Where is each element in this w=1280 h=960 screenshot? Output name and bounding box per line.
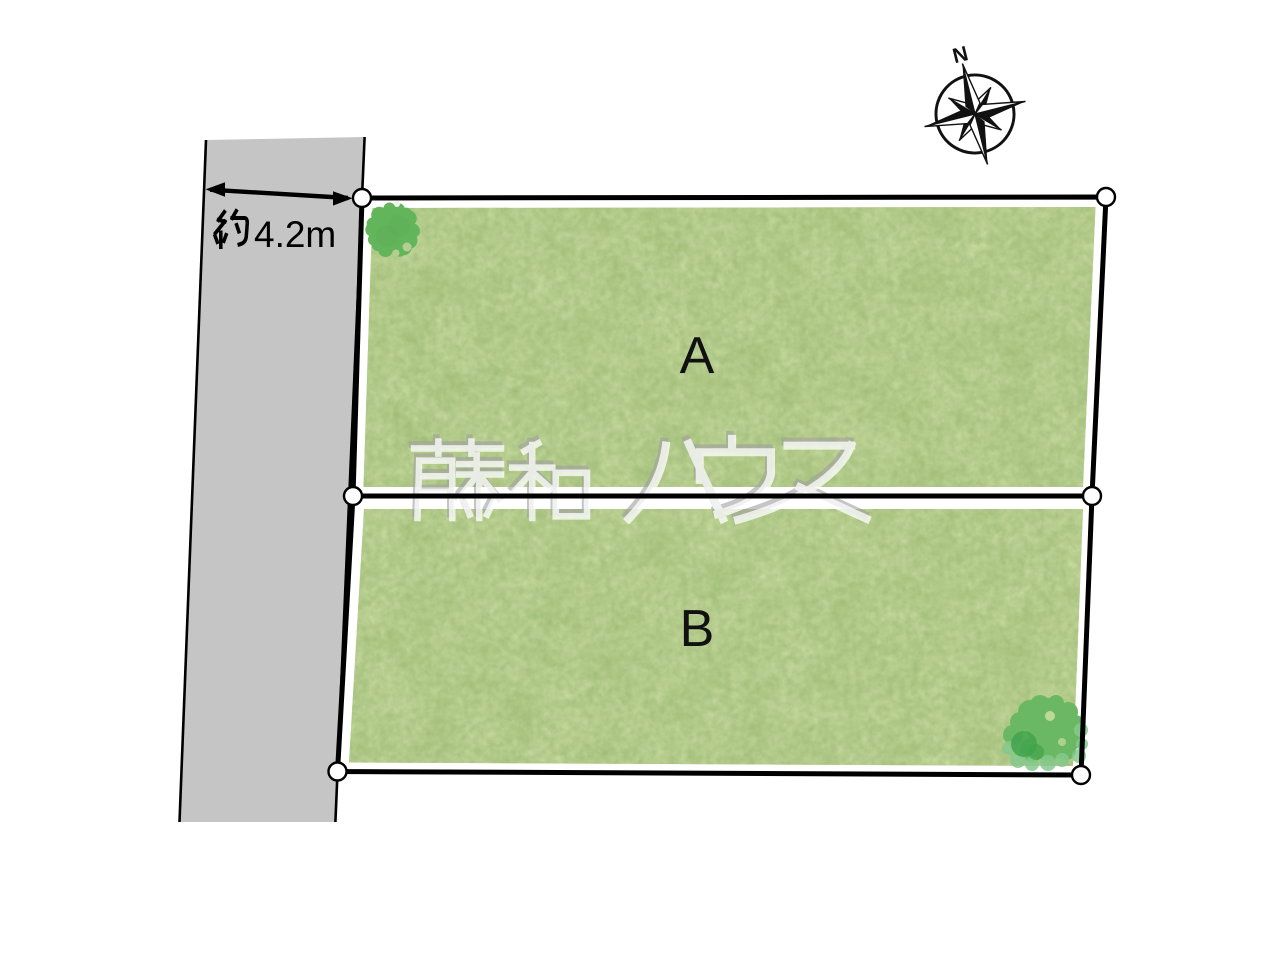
svg-text:4.2m: 4.2m: [254, 214, 336, 255]
svg-text:A: A: [680, 327, 715, 385]
svg-text:B: B: [680, 600, 715, 658]
svg-text:N: N: [950, 42, 970, 68]
